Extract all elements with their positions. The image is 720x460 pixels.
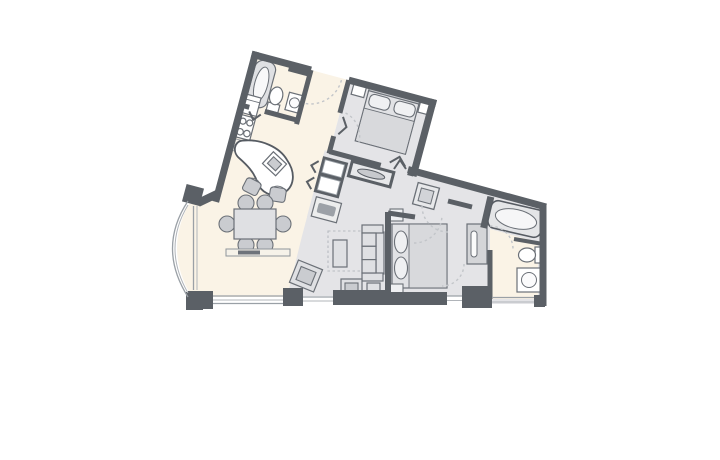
accent-table [413,183,440,210]
pillow [395,257,408,279]
wall [242,105,250,107]
dining-table [234,209,276,239]
sofa-cushion [362,233,376,246]
sofa-back [376,232,384,274]
tv [471,231,477,257]
pillow [395,231,408,253]
floor-plan-image [0,0,720,460]
wall-block [186,292,203,310]
sofa-arm [362,273,383,281]
sofa-cushion [362,246,376,259]
nightstand [390,284,403,293]
wall-block [388,292,447,305]
toilet [519,248,536,262]
sofa-cushion [362,260,376,273]
blanket [409,225,446,288]
dining-chair [275,216,291,232]
floor-plan-page [0,0,720,460]
console-tray [238,251,260,255]
wall-block [462,286,492,308]
dining-chair [219,216,235,232]
wall-block [333,290,390,305]
sink-basin [522,273,537,288]
coffee-table [333,240,347,267]
wall-block [283,288,303,306]
wall-block [534,295,545,307]
sofa-arm [362,225,383,233]
